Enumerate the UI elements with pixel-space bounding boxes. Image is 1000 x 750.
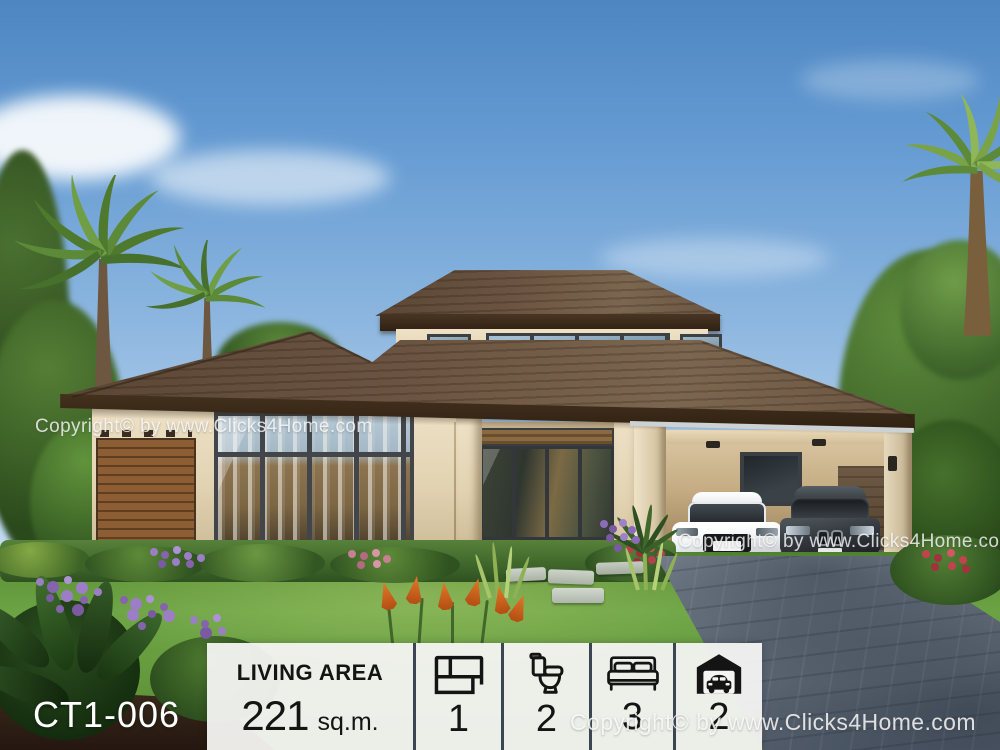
hedge-bush — [200, 544, 325, 582]
car-windshield — [791, 497, 869, 519]
living-area-row: 221 sq.m. — [241, 692, 378, 740]
purple-flowers — [36, 578, 44, 586]
pink-flowers — [348, 550, 356, 558]
purple-flowers — [120, 596, 128, 604]
purple-flowers — [150, 548, 158, 556]
purple-flowers — [190, 616, 198, 624]
garage-icon — [696, 652, 742, 696]
bed-icon — [604, 652, 662, 696]
stat-cell-floors: 1 — [413, 643, 501, 750]
entrance-glass-doors — [480, 446, 614, 540]
plan-code-label: CT1-006 — [33, 694, 180, 736]
orange-flower — [464, 576, 486, 607]
car-windshield — [688, 502, 766, 524]
living-area-cell: LIVING AREA 221 sq.m. — [207, 643, 413, 750]
watermark-middle-right: Copyright© by www.Clicks4Home.com — [678, 531, 1000, 553]
stat-value-floors: 1 — [448, 700, 469, 738]
toilet-icon — [527, 652, 567, 698]
wood-slat-panel — [96, 438, 196, 548]
stat-value-bathrooms: 2 — [536, 700, 557, 738]
purple-flowers — [600, 520, 608, 528]
orange-flower — [436, 581, 454, 610]
living-area-unit: sq.m. — [317, 708, 378, 737]
stepping-stone — [548, 569, 594, 585]
cycad-plant — [616, 486, 674, 552]
floor-plan-icon — [433, 652, 485, 698]
orange-flower-plant — [375, 576, 530, 650]
stem — [480, 600, 489, 646]
living-area-label: LIVING AREA — [237, 660, 383, 686]
house-render-scene: Copyright© by www.Clicks4Home.com Copyri… — [0, 0, 1000, 750]
watermark-top-left: Copyright© by www.Clicks4Home.com — [35, 416, 373, 438]
orange-flower — [376, 580, 398, 611]
orange-flower — [491, 585, 512, 615]
roof-ridge-lines — [0, 0, 1000, 450]
stem — [417, 598, 423, 646]
watermark-bottom: Copyright© by www.Clicks4Home.com — [570, 709, 976, 736]
living-area-value: 221 — [241, 692, 308, 740]
stem — [451, 602, 454, 646]
stepping-stone — [552, 588, 604, 603]
wall-sconce-light-icon — [888, 456, 897, 471]
